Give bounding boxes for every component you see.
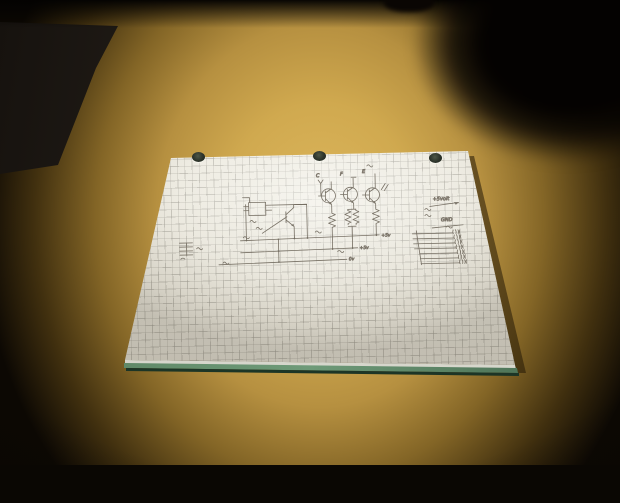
rail-label-mid: +5v (360, 245, 370, 251)
driver-transistor (262, 204, 308, 239)
ic-box (242, 196, 307, 240)
resistor-1 (328, 212, 336, 250)
pin-lines (417, 233, 459, 264)
header-pinout: +5volt GND (411, 196, 466, 265)
photo-scene: C F E (0, 0, 620, 465)
header-ground-label: GND (441, 217, 453, 223)
resistor-3 (372, 208, 379, 225)
resistor-2b (353, 209, 359, 225)
rail-label-bottom: 0v (349, 256, 355, 262)
resistor-2a (345, 209, 351, 225)
power-arrow-icon (430, 202, 459, 206)
input-pulse-symbol (179, 243, 202, 260)
output-transistor-3: E (362, 164, 390, 236)
transistor-label-2: F (340, 171, 343, 177)
transistor-label-3: E (362, 169, 366, 175)
header-power-label: +5volt (432, 196, 450, 202)
hand-drawn-schematic: C F E (0, 0, 620, 465)
transistor-label-1: C (316, 173, 320, 179)
output-transistor-1: C (316, 173, 337, 250)
rail-label-top: +5v (381, 232, 391, 238)
power-rails: +5v +5v 0v (218, 229, 391, 265)
pin-bus-line (416, 231, 421, 265)
